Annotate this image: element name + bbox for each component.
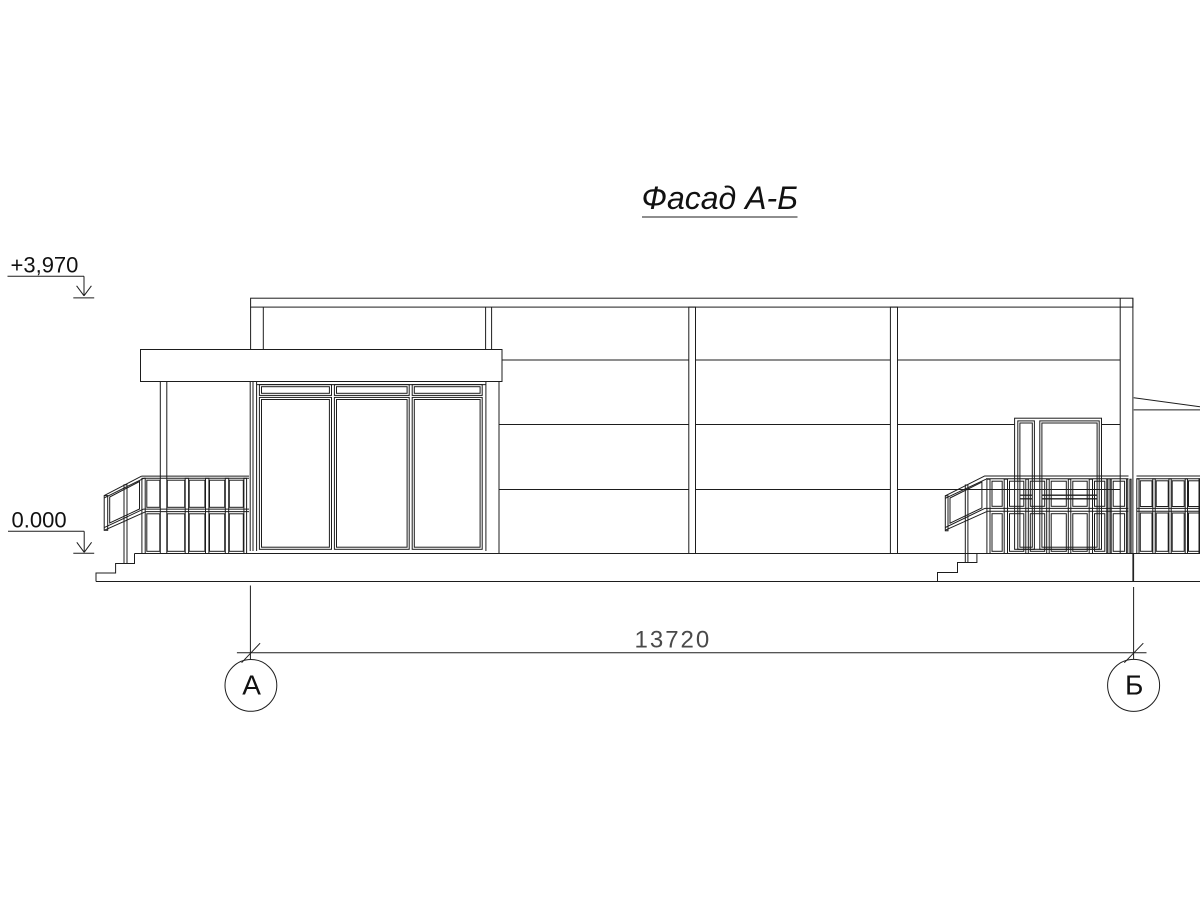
svg-text:0.000: 0.000: [12, 508, 67, 533]
svg-text:А: А: [242, 669, 261, 700]
svg-text:Фасад А-Б: Фасад А-Б: [642, 180, 798, 216]
svg-text:13720: 13720: [635, 627, 712, 654]
svg-text:+3,970: +3,970: [11, 253, 79, 278]
svg-text:Б: Б: [1125, 669, 1143, 700]
